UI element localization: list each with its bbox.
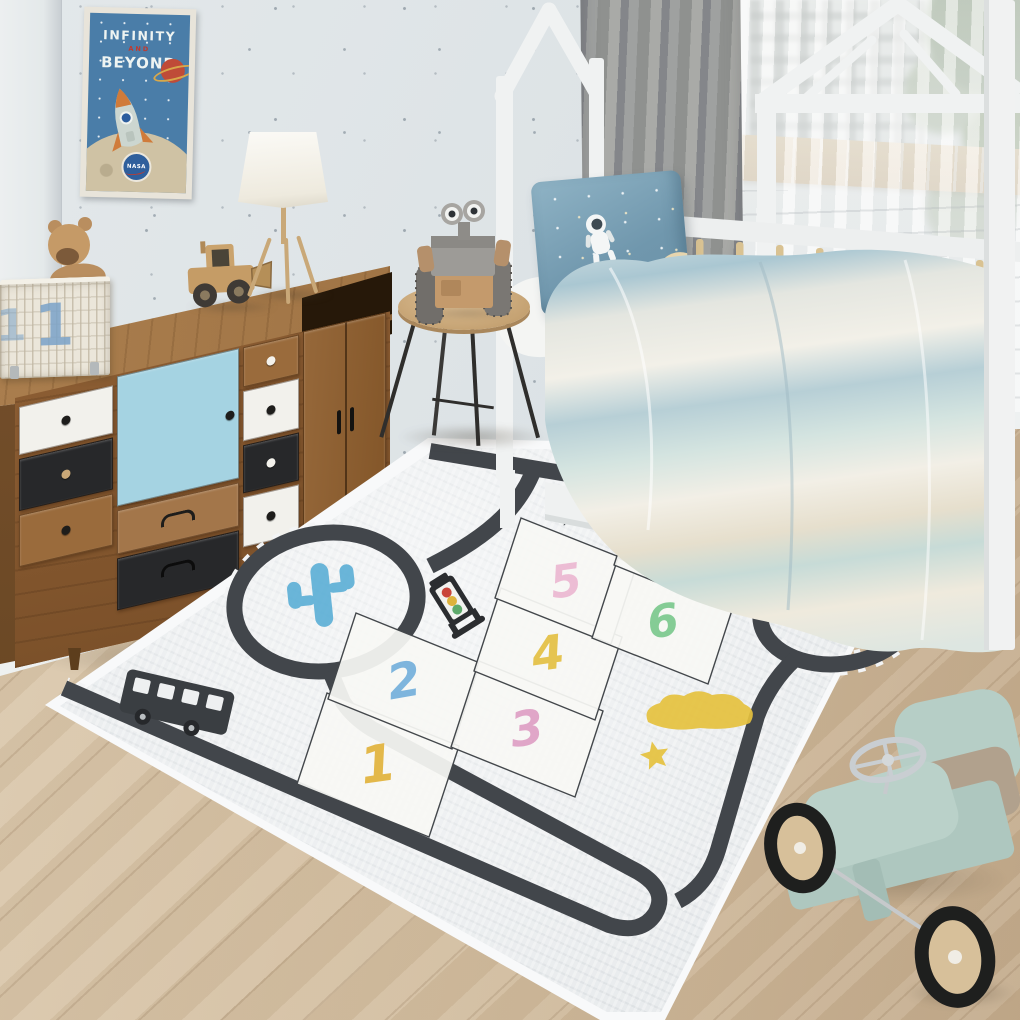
table-shadow [398,424,548,450]
duvet [545,250,1012,653]
ride-on-toy-car [755,672,1020,1020]
kids-room-photo: INFINITY AND BEYOND NASA [0,0,1020,1020]
robot-toy [408,188,520,333]
rear-wheel [916,909,994,1005]
